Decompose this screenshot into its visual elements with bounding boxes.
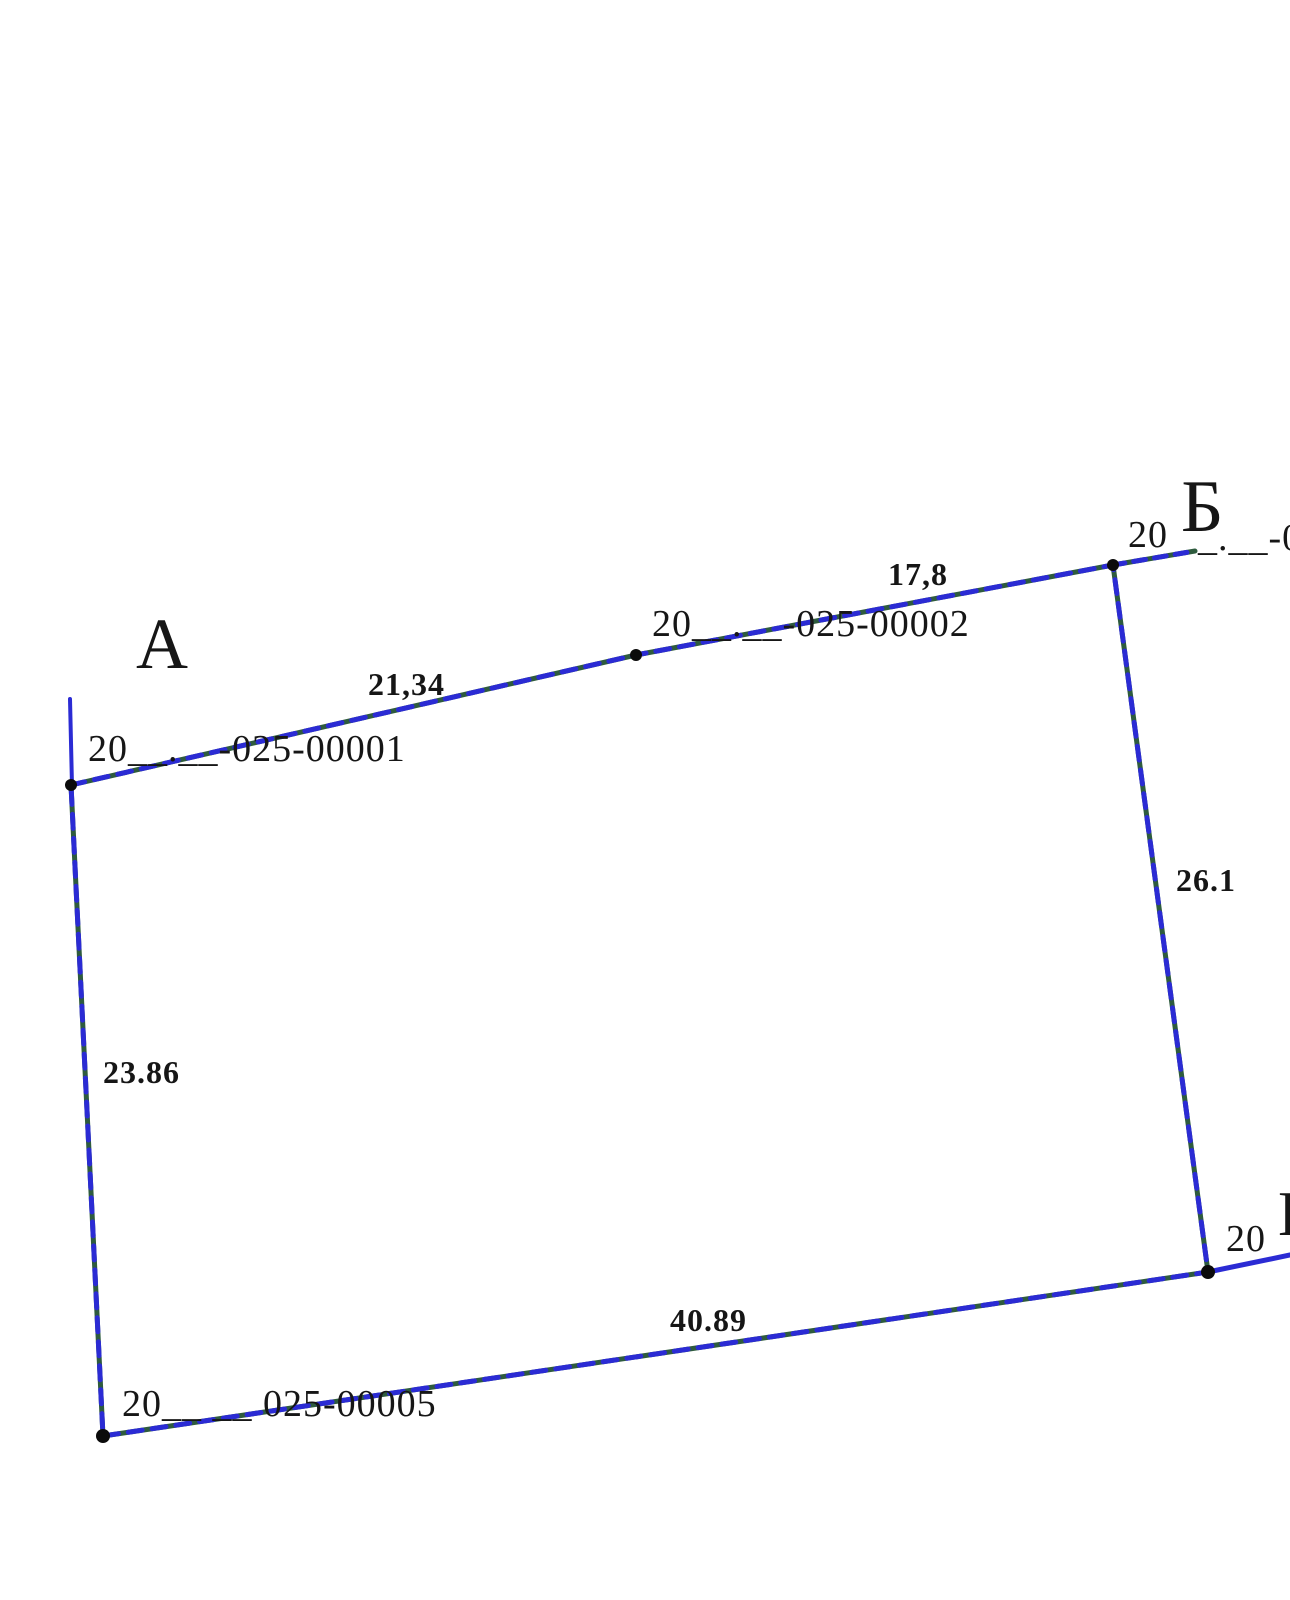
cadastral-number-parcel-b-prefix: 20 bbox=[1128, 516, 1168, 554]
cadastral-number-parcel-v-prefix: 20 bbox=[1226, 1220, 1266, 1258]
vertex-dot-b bbox=[1107, 559, 1119, 571]
cadastral-number-parcel-5: 20__ __ 025-00005 bbox=[122, 1385, 437, 1423]
parcel-boundary-overlay bbox=[71, 565, 1208, 1436]
vertex-dot-sw bbox=[96, 1429, 110, 1443]
length-label-a-mid: 21,34 bbox=[368, 668, 445, 700]
vertex-label-a: А bbox=[136, 608, 188, 680]
length-label-v-sw: 40.89 bbox=[670, 1304, 747, 1336]
length-label-b-v: 26.1 bbox=[1176, 864, 1236, 896]
boundary-extension-a bbox=[70, 699, 72, 786]
cadastral-plan: А Б В 20__.__-025-00001 20__.__-025-0000… bbox=[0, 0, 1290, 1600]
vertex-dot-v bbox=[1201, 1265, 1215, 1279]
vertex-dot-a bbox=[65, 779, 77, 791]
cadastral-number-parcel-b-suffix: _.__-0 bbox=[1198, 519, 1290, 557]
cadastral-number-parcel-1: 20__.__-025-00001 bbox=[88, 730, 406, 768]
length-label-sw-a: 23.86 bbox=[103, 1056, 180, 1088]
cadastral-number-parcel-2: 20__.__-025-00002 bbox=[652, 605, 970, 643]
vertex-dot-mid bbox=[630, 649, 642, 661]
length-label-mid-b: 17,8 bbox=[888, 558, 948, 590]
parcel-plan-canvas bbox=[0, 0, 1290, 1600]
parcel-boundary-base bbox=[71, 565, 1208, 1436]
vertex-label-v: В bbox=[1278, 1182, 1290, 1246]
